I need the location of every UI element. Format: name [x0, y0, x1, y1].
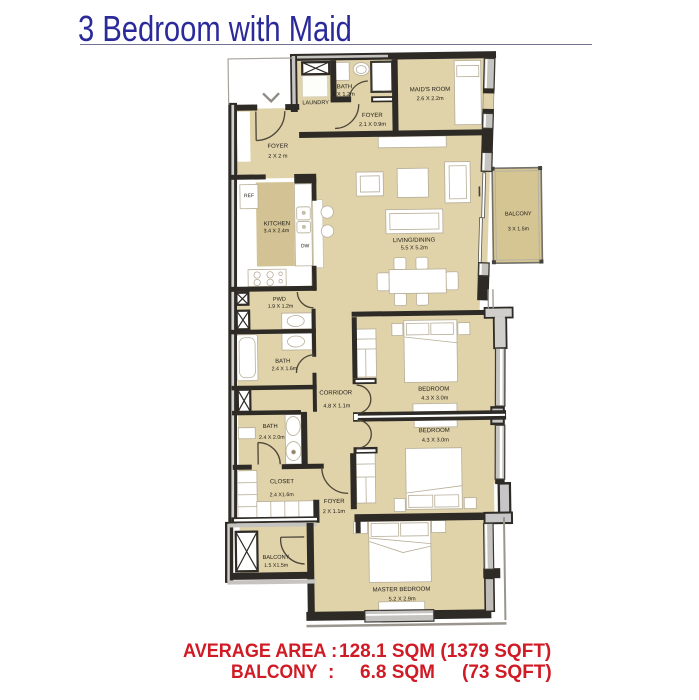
svg-text:FOYER: FOYER: [324, 499, 345, 505]
svg-text:1.5 X1.5m: 1.5 X1.5m: [264, 563, 289, 569]
svg-text:CORRIDOR: CORRIDOR: [319, 390, 352, 396]
svg-text:PWD: PWD: [273, 297, 286, 303]
svg-text:3 X 1.5m: 3 X 1.5m: [508, 226, 530, 232]
svg-text:2 X 1.2m: 2 X 1.2m: [332, 92, 355, 98]
svg-text:LIVING/DINING: LIVING/DINING: [393, 238, 436, 245]
svg-text:BALCONY: BALCONY: [505, 211, 532, 217]
svg-text:4.3 X 3.0m: 4.3 X 3.0m: [422, 437, 449, 443]
svg-text:3.4 X 2.4m: 3.4 X 2.4m: [264, 228, 290, 234]
svg-text:KITCHEN: KITCHEN: [264, 221, 290, 227]
svg-text:LAUNDRY: LAUNDRY: [302, 100, 329, 106]
svg-text:BATH: BATH: [337, 84, 353, 90]
svg-text:5.2 X 2.9m: 5.2 X 2.9m: [389, 596, 416, 602]
svg-text:BEDROOM: BEDROOM: [419, 428, 450, 434]
svg-text:2.4 X1.6m: 2.4 X1.6m: [270, 492, 295, 498]
svg-text:DW: DW: [301, 243, 310, 249]
svg-text:FOYER: FOYER: [362, 113, 383, 119]
svg-text:BATH: BATH: [275, 359, 290, 365]
svg-text:4.8 X 1.1m: 4.8 X 1.1m: [323, 403, 350, 409]
svg-text:BATH: BATH: [263, 424, 278, 430]
svg-text:BEDROOM: BEDROOM: [418, 386, 449, 392]
svg-text:CLOSET: CLOSET: [270, 479, 294, 485]
svg-text:5.5 X 5.2m: 5.5 X 5.2m: [401, 245, 428, 251]
svg-text:2 X 2 m: 2 X 2 m: [268, 154, 288, 160]
svg-text:BALCONY: BALCONY: [263, 555, 290, 561]
svg-text:MASTER BEDROOM: MASTER BEDROOM: [373, 587, 431, 594]
svg-text:2.1 X 0.9m: 2.1 X 0.9m: [359, 122, 386, 128]
svg-text:2.4 X 1.6m: 2.4 X 1.6m: [272, 366, 298, 372]
svg-text:1.9 X 1.2m: 1.9 X 1.2m: [268, 304, 294, 310]
svg-text:2 X 1.1m: 2 X 1.1m: [323, 509, 346, 515]
svg-text:2.4 X 2.0m: 2.4 X 2.0m: [259, 435, 285, 441]
svg-text:MAID'S ROOM: MAID'S ROOM: [410, 87, 451, 94]
svg-text:FOYER: FOYER: [267, 144, 288, 150]
svg-text:4.3 X 3.0m: 4.3 X 3.0m: [421, 395, 448, 401]
svg-text:REF: REF: [244, 193, 254, 199]
svg-text:2.6 X 2.2m: 2.6 X 2.2m: [417, 96, 444, 102]
